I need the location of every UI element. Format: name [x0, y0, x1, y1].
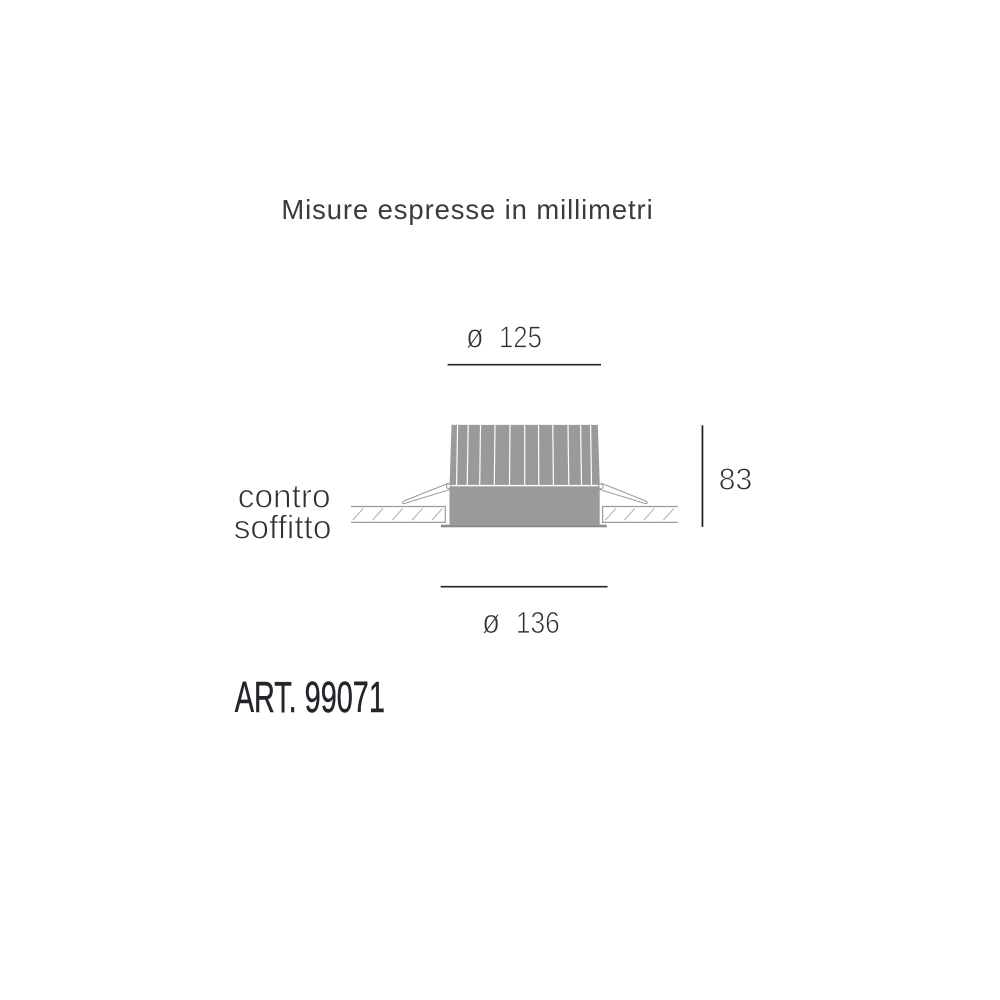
svg-text:soffitto: soffitto — [234, 509, 332, 546]
svg-text:ø 136: ø 136 — [482, 602, 560, 641]
svg-text:ART. 99071: ART. 99071 — [235, 672, 385, 722]
svg-text:Misure espresse in millimetri: Misure espresse in millimetri — [281, 194, 653, 225]
svg-text:ø 125: ø 125 — [466, 316, 542, 355]
svg-text:83: 83 — [719, 462, 752, 497]
